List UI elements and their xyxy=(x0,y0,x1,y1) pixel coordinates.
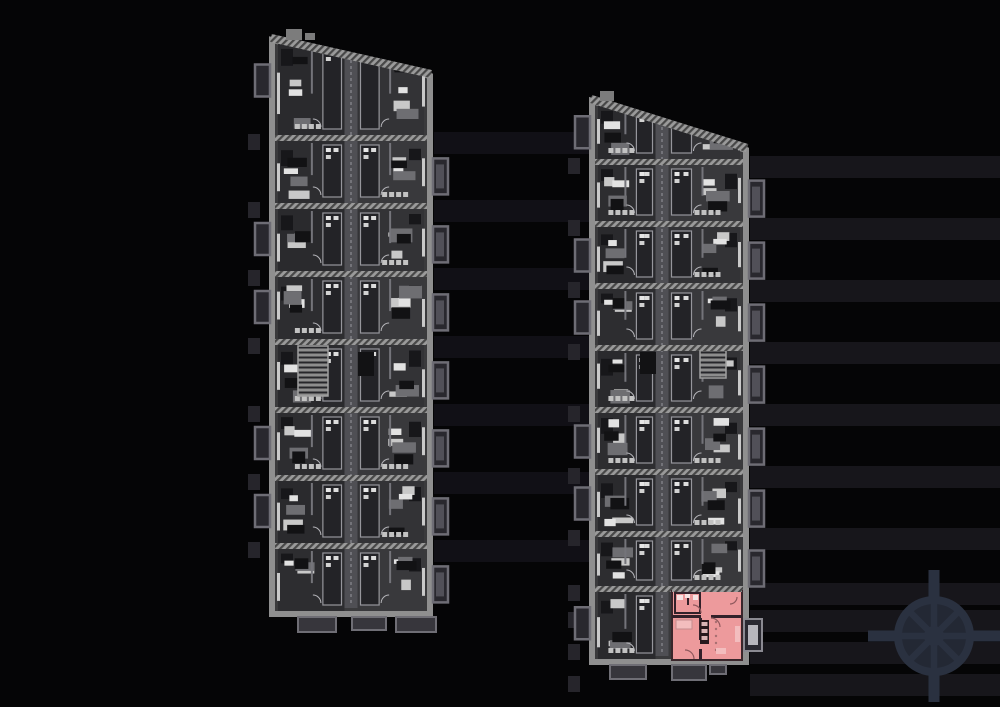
kitchen-counter xyxy=(389,532,394,537)
furniture xyxy=(612,180,629,187)
kitchen-counter xyxy=(702,575,707,580)
kitchen-counter xyxy=(695,575,700,580)
window xyxy=(597,119,600,144)
furniture xyxy=(608,419,619,427)
window xyxy=(597,364,600,389)
furniture xyxy=(284,561,293,566)
entrance-porch xyxy=(396,617,436,632)
kitchen-counter xyxy=(382,532,387,537)
kitchen-counter xyxy=(702,458,707,463)
window xyxy=(277,73,280,114)
kitchen-counter xyxy=(389,260,394,265)
window xyxy=(277,234,280,262)
balcony xyxy=(255,291,270,323)
kitchen-counter xyxy=(709,520,714,525)
bathroom xyxy=(323,553,342,605)
bathroom xyxy=(323,281,342,333)
window xyxy=(277,163,280,191)
window xyxy=(738,242,741,267)
bathroom xyxy=(636,169,652,215)
window xyxy=(422,568,425,596)
balcony xyxy=(575,302,590,334)
kitchen-counter xyxy=(709,458,714,463)
furniture xyxy=(290,80,302,87)
balcony xyxy=(255,223,270,255)
kitchen-counter xyxy=(382,192,387,197)
entrance-porch xyxy=(610,665,646,679)
kitchen-counter xyxy=(295,464,300,469)
kitchen-counter xyxy=(716,458,721,463)
kitchen-counter xyxy=(716,575,721,580)
kitchen-counter xyxy=(396,192,401,197)
kitchen-counter xyxy=(608,458,613,463)
kitchen-counter xyxy=(295,328,300,333)
balcony xyxy=(575,116,590,148)
kitchen-counter xyxy=(702,520,707,525)
balcony xyxy=(255,427,270,459)
bathroom xyxy=(636,231,652,277)
furniture xyxy=(289,89,302,96)
kitchen-counter xyxy=(695,272,700,277)
balcony xyxy=(255,65,270,97)
compass-west-arm xyxy=(868,631,900,642)
bathroom xyxy=(361,213,380,265)
furniture xyxy=(604,300,613,305)
kitchen-counter xyxy=(622,396,627,401)
kitchen-counter xyxy=(403,532,408,537)
window xyxy=(597,311,600,336)
window xyxy=(738,370,741,395)
window xyxy=(597,617,600,647)
bathroom xyxy=(323,213,342,265)
balcony xyxy=(575,426,590,458)
furniture xyxy=(676,620,692,629)
kitchen-counter xyxy=(403,260,408,265)
kitchen-counter xyxy=(302,464,307,469)
roof-structure xyxy=(600,91,614,101)
kitchen-counter xyxy=(389,464,394,469)
kitchen-counter xyxy=(396,260,401,265)
window xyxy=(597,492,600,517)
bathroom xyxy=(636,293,652,339)
furniture xyxy=(391,251,402,259)
furniture xyxy=(284,426,294,435)
window xyxy=(277,432,280,460)
furniture xyxy=(613,359,623,363)
kitchen-counter xyxy=(702,210,707,215)
kitchen-counter xyxy=(608,396,613,401)
furniture xyxy=(708,120,720,127)
kitchen-counter xyxy=(309,328,314,333)
bathroom xyxy=(323,47,342,129)
furniture xyxy=(294,430,311,437)
kitchen-counter xyxy=(302,328,307,333)
furniture xyxy=(604,519,615,526)
furniture xyxy=(610,599,626,608)
window xyxy=(422,299,425,327)
kitchen-counter xyxy=(382,464,387,469)
kitchen-counter xyxy=(608,648,613,653)
compass-north-arm xyxy=(929,570,940,602)
kitchen-counter xyxy=(622,648,627,653)
window xyxy=(277,362,280,390)
roof-structure xyxy=(286,29,302,40)
balcony xyxy=(575,240,590,272)
window xyxy=(597,182,600,207)
window xyxy=(738,306,741,331)
roof-structure xyxy=(305,33,315,40)
window xyxy=(738,434,741,459)
kitchen-counter xyxy=(389,192,394,197)
balcony xyxy=(575,488,590,520)
staircase xyxy=(700,350,726,378)
furniture xyxy=(608,240,617,246)
building-left xyxy=(255,29,448,632)
furniture xyxy=(401,580,411,590)
window xyxy=(422,229,425,257)
balcony xyxy=(255,495,270,527)
bathroom xyxy=(361,553,380,605)
window xyxy=(422,498,425,526)
kitchen-counter xyxy=(309,464,314,469)
entrance-porch xyxy=(298,617,336,632)
bathroom xyxy=(361,281,380,333)
furniture xyxy=(604,121,620,129)
kitchen-counter xyxy=(615,648,620,653)
kitchen-counter xyxy=(382,260,387,265)
elevator-shaft xyxy=(640,352,656,374)
kitchen-counter xyxy=(396,464,401,469)
window xyxy=(277,292,280,320)
furniture xyxy=(284,168,298,174)
furniture xyxy=(716,316,726,326)
balcony xyxy=(575,607,590,639)
kitchen-counter xyxy=(608,210,613,215)
bathroom xyxy=(636,417,652,463)
kitchen-counter xyxy=(403,192,408,197)
furniture xyxy=(286,285,302,291)
bathroom xyxy=(323,485,342,537)
entrance-porch xyxy=(710,665,726,674)
compass-east-arm xyxy=(968,631,1000,642)
window xyxy=(422,158,425,186)
bathroom xyxy=(323,145,342,197)
furniture xyxy=(713,239,726,244)
entrance-porch xyxy=(352,617,386,630)
kitchen-counter xyxy=(622,458,627,463)
window xyxy=(422,427,425,455)
window xyxy=(277,503,280,531)
kitchen-counter xyxy=(615,458,620,463)
staircase xyxy=(298,346,328,396)
kitchen-counter xyxy=(695,458,700,463)
bathroom xyxy=(636,596,652,653)
kitchen-counter xyxy=(702,272,707,277)
furniture xyxy=(402,486,414,495)
furniture xyxy=(702,179,715,185)
window xyxy=(597,554,600,576)
kitchen-counter xyxy=(709,575,714,580)
kitchen-counter xyxy=(622,210,627,215)
bathroom xyxy=(323,417,342,469)
kitchen-counter xyxy=(302,124,307,129)
bathroom xyxy=(361,485,380,537)
compass-south-arm xyxy=(929,670,940,702)
bathroom xyxy=(636,541,652,580)
window xyxy=(422,369,425,397)
kitchen-counter xyxy=(709,210,714,215)
kitchen-counter xyxy=(716,210,721,215)
window xyxy=(277,573,280,601)
furniture xyxy=(714,418,729,426)
kitchen-counter xyxy=(716,272,721,277)
kitchen-counter xyxy=(615,148,620,153)
kitchen-counter xyxy=(615,396,620,401)
entrance-porch xyxy=(672,665,706,680)
kitchen-counter xyxy=(695,210,700,215)
kitchen-counter xyxy=(608,148,613,153)
window xyxy=(738,498,741,523)
floor-plan-viewer xyxy=(0,0,1000,707)
kitchen-counter xyxy=(396,532,401,537)
elevator-shaft xyxy=(358,352,374,376)
furniture xyxy=(289,495,298,501)
kitchen-counter xyxy=(716,520,721,525)
window xyxy=(738,550,741,572)
kitchen-counter xyxy=(295,124,300,129)
furniture xyxy=(399,298,410,306)
furniture xyxy=(613,572,625,578)
furniture xyxy=(394,363,406,370)
kitchen-counter xyxy=(709,272,714,277)
bathroom xyxy=(361,145,380,197)
window xyxy=(738,178,741,203)
kitchen-counter xyxy=(695,520,700,525)
furniture xyxy=(289,191,310,199)
kitchen-counter xyxy=(403,464,408,469)
furniture xyxy=(398,87,407,93)
kitchen-counter xyxy=(622,148,627,153)
bathroom xyxy=(361,417,380,469)
bathroom xyxy=(636,479,652,525)
window xyxy=(597,428,600,453)
kitchen-counter xyxy=(615,210,620,215)
kitchen-counter xyxy=(309,124,314,129)
building-right xyxy=(575,91,764,680)
furniture xyxy=(399,494,412,499)
site-plan-svg xyxy=(0,0,1000,707)
window xyxy=(597,247,600,272)
